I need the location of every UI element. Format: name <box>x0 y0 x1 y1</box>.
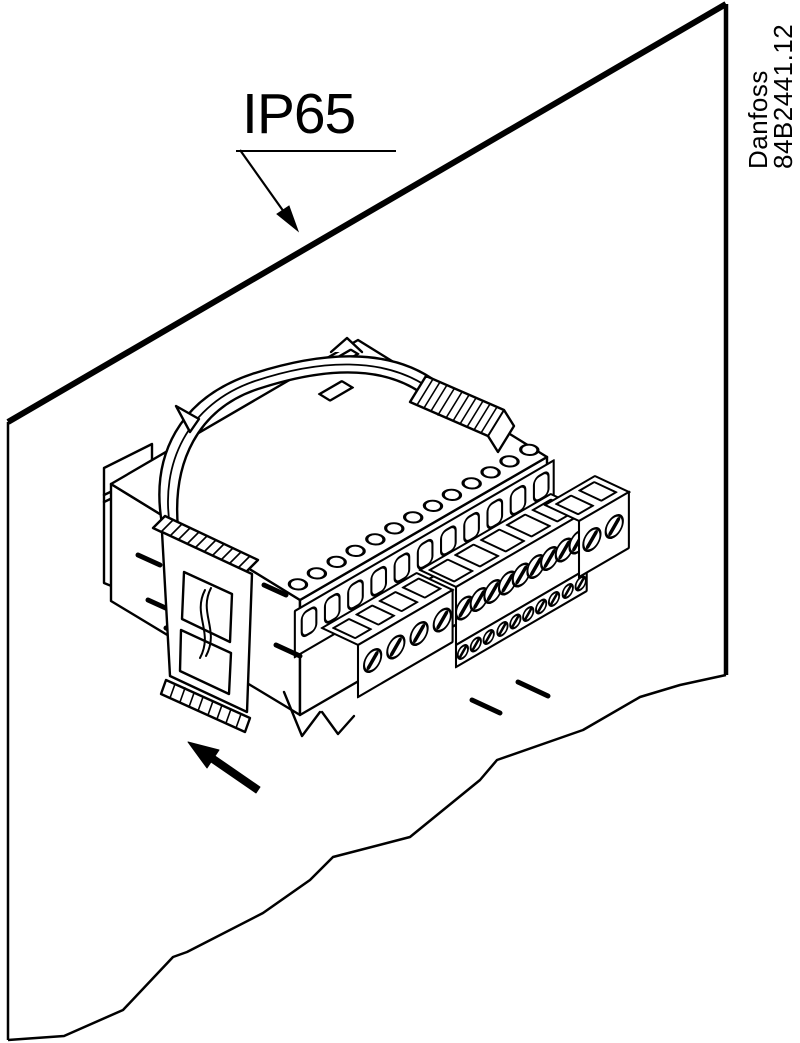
ip65-leader-arrow-icon <box>240 150 298 231</box>
drawing-id-block: Danfoss 84B2441.12 <box>746 9 798 169</box>
drawing-number-label: 84B2441.12 <box>771 9 796 169</box>
ip65-rating-label: IP65 <box>236 86 396 152</box>
figure-canvas: IP65 Danfoss 84B2441.12 <box>0 0 800 1043</box>
panel-mount-diagram <box>0 0 800 1043</box>
